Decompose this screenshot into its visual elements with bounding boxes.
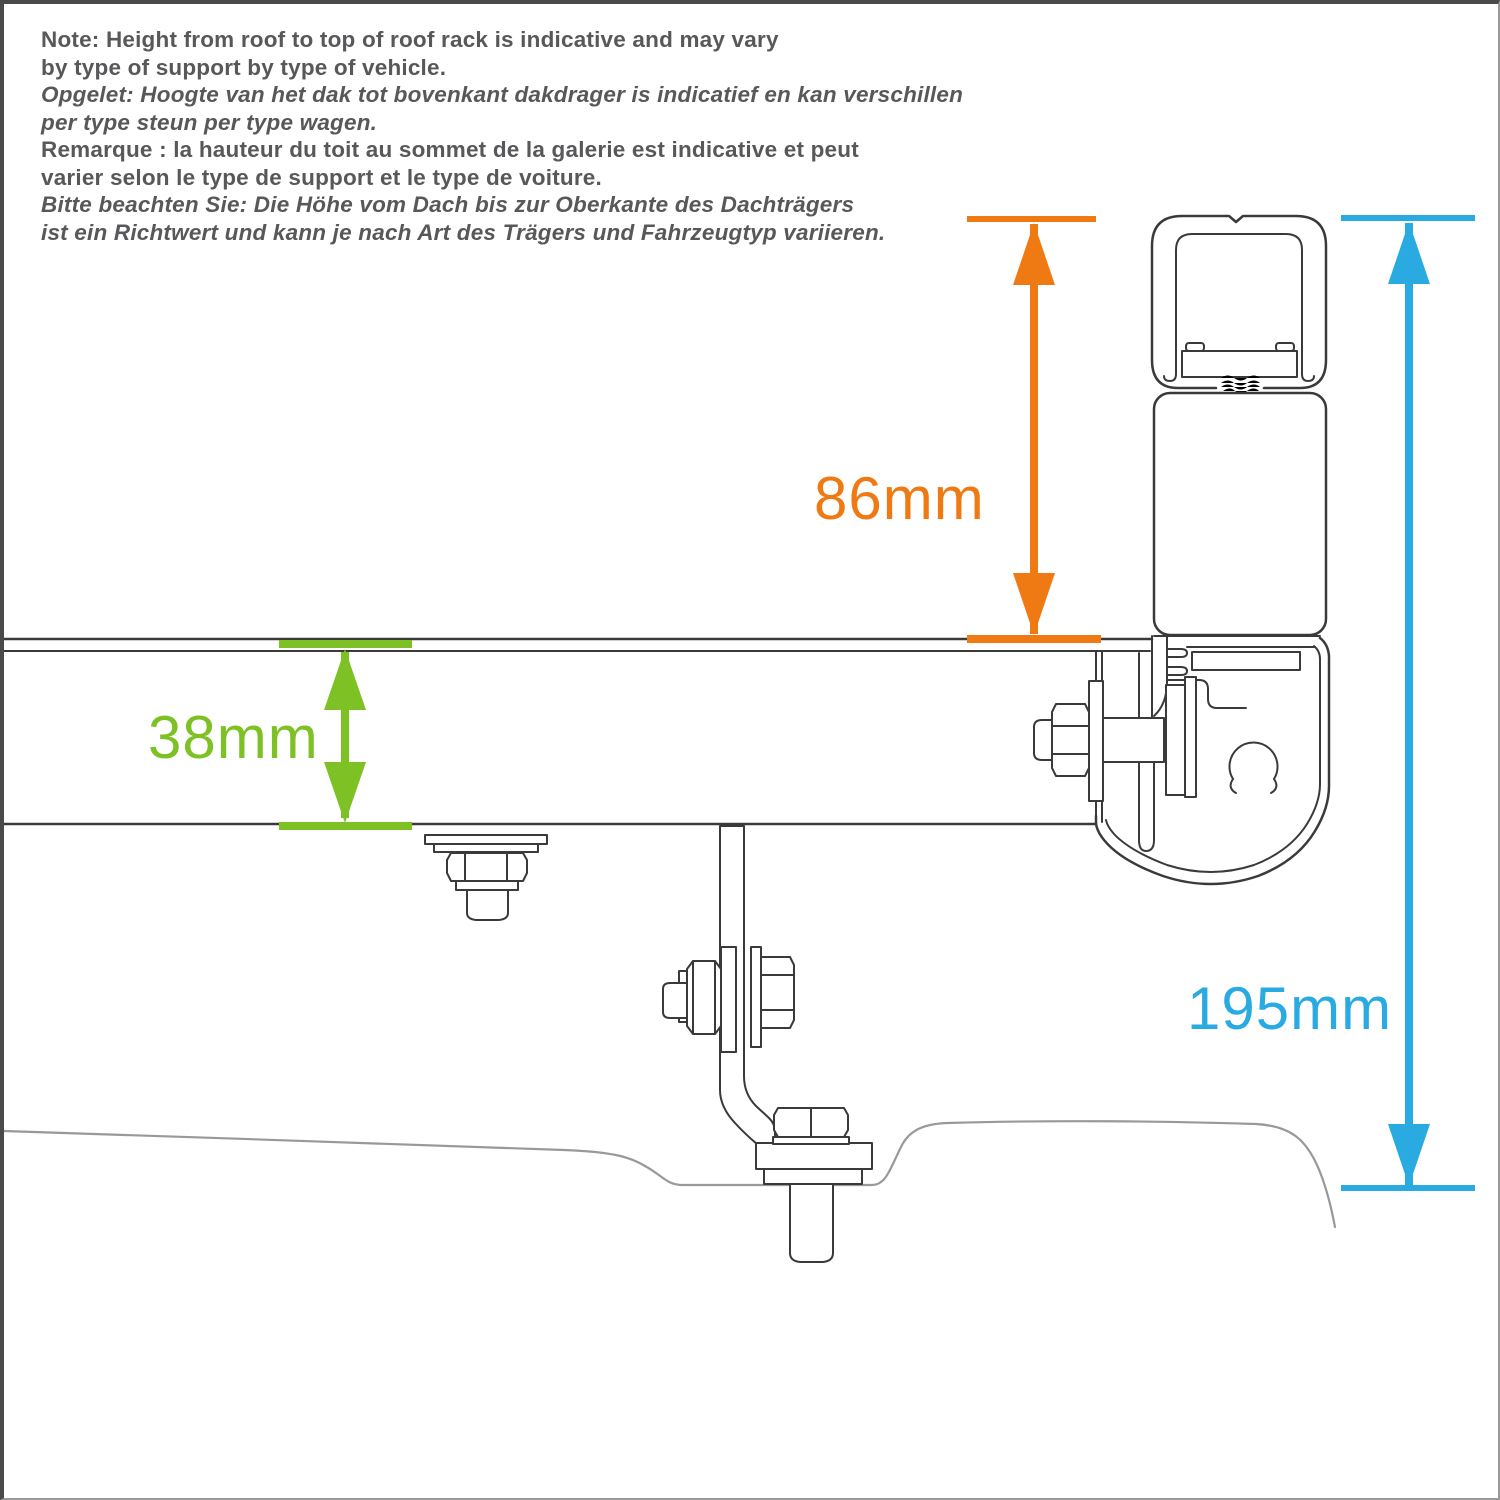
dimension-arrow-86mm: [967, 216, 1101, 643]
crossbar-clamp-spring: [1221, 376, 1260, 394]
crossbar-slot-plate: [1182, 351, 1297, 377]
note-line-nl-1: Opgelet: Hoogte van het dak tot bovenkan…: [41, 81, 1031, 109]
note-line-de-1: Bitte beachten Sie: Die Höhe vom Dach bi…: [41, 191, 1031, 219]
bolt-nut: [1052, 704, 1089, 776]
foot-bolt-stud: [790, 1184, 833, 1262]
crossbar-profile: [1152, 216, 1326, 394]
leg-clamp: [1034, 636, 1329, 884]
leg-body: [1154, 393, 1326, 635]
note-line-fr-2: varier selon le type de support et le ty…: [41, 164, 1031, 192]
dim-cap-top: [279, 640, 412, 648]
note-line-de-2: ist ein Richtwert und kann je nach Art d…: [41, 219, 1031, 247]
car-roof-contour: [4, 1121, 1335, 1227]
bracket-side-bolt: [663, 947, 794, 1052]
note-line-en-1: Note: Height from roof to top of roof ra…: [41, 26, 1031, 54]
diagram-canvas: Note: Height from roof to top of roof ra…: [0, 0, 1500, 1500]
dimension-label-total-height: 195mm: [1187, 974, 1392, 1043]
dim-cap-top: [1341, 215, 1475, 221]
dim-cap-bottom: [967, 635, 1101, 643]
note-block: Note: Height from roof to top of roof ra…: [41, 26, 1031, 246]
clamp-slide-plate: [1192, 652, 1300, 670]
bolt-washer: [1089, 681, 1103, 801]
dim-cap-bottom: [279, 822, 412, 830]
dimension-label-rack-height: 86mm: [814, 464, 985, 533]
support-bracket: [425, 826, 872, 1262]
bracket-upper-bolt: [425, 835, 547, 920]
dimension-arrow-195mm: [1341, 215, 1475, 1191]
dimension-label-rail-thickness: 38mm: [148, 703, 319, 772]
note-line-nl-2: per type steun per type wagen.: [41, 109, 1031, 137]
note-line-en-2: by type of support by type of vehicle.: [41, 54, 1031, 82]
note-line-fr-1: Remarque : la hauteur du toit au sommet …: [41, 136, 1031, 164]
